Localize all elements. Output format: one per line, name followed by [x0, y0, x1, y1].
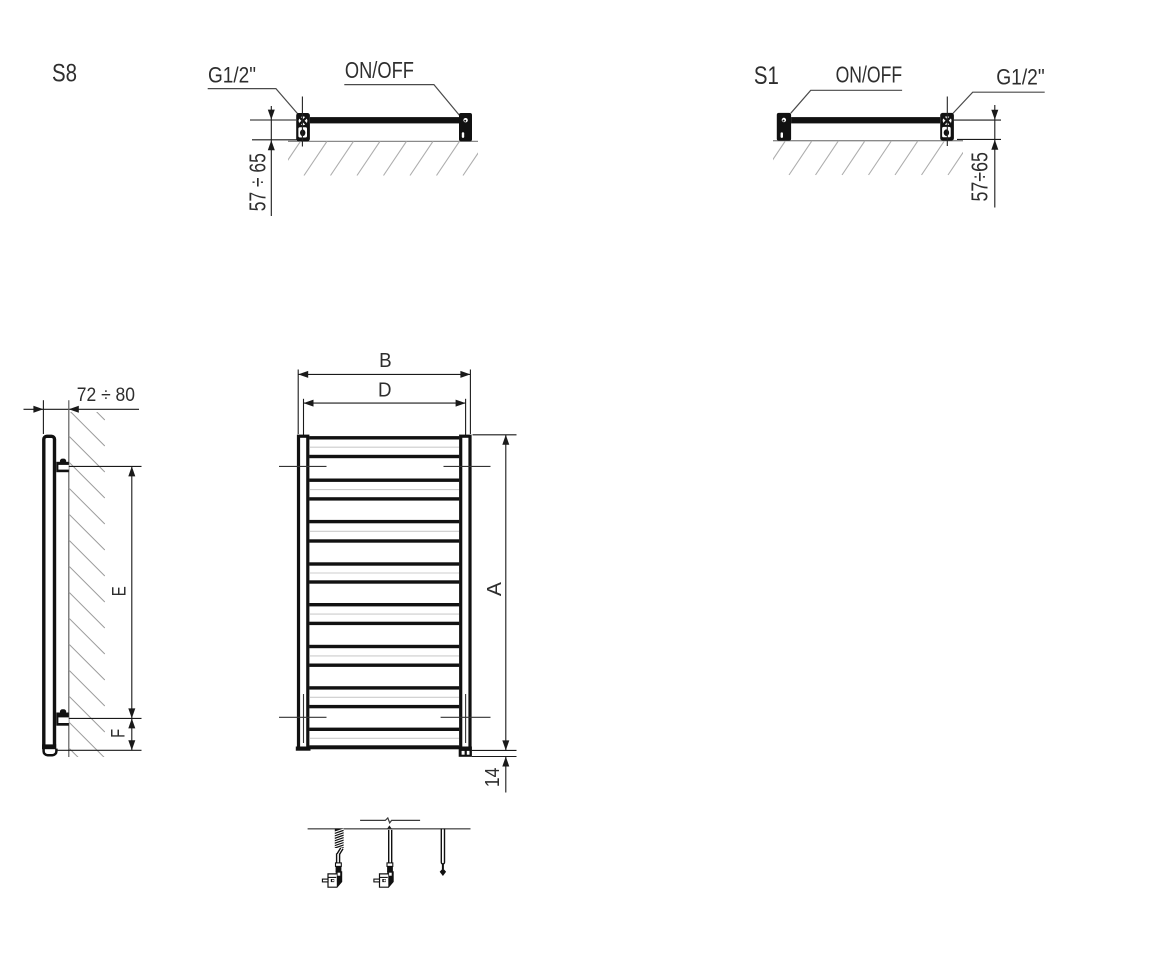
svg-text:S1: S1: [754, 62, 779, 90]
svg-text:S8: S8: [52, 60, 77, 88]
svg-text:ON/OFF: ON/OFF: [836, 62, 903, 88]
svg-text:ON/OFF: ON/OFF: [345, 57, 414, 83]
svg-text:57 ÷ 65: 57 ÷ 65: [245, 153, 271, 211]
svg-text:D: D: [378, 380, 392, 402]
svg-text:A: A: [484, 582, 506, 597]
svg-text:E: E: [109, 586, 130, 596]
svg-text:57÷65: 57÷65: [966, 152, 992, 202]
svg-text:B: B: [379, 350, 392, 372]
svg-text:14: 14: [482, 768, 504, 788]
svg-text:F: F: [109, 729, 130, 738]
svg-text:G1/2": G1/2": [996, 65, 1044, 90]
svg-text:G1/2": G1/2": [208, 63, 256, 88]
svg-text:72 ÷ 80: 72 ÷ 80: [77, 385, 135, 406]
